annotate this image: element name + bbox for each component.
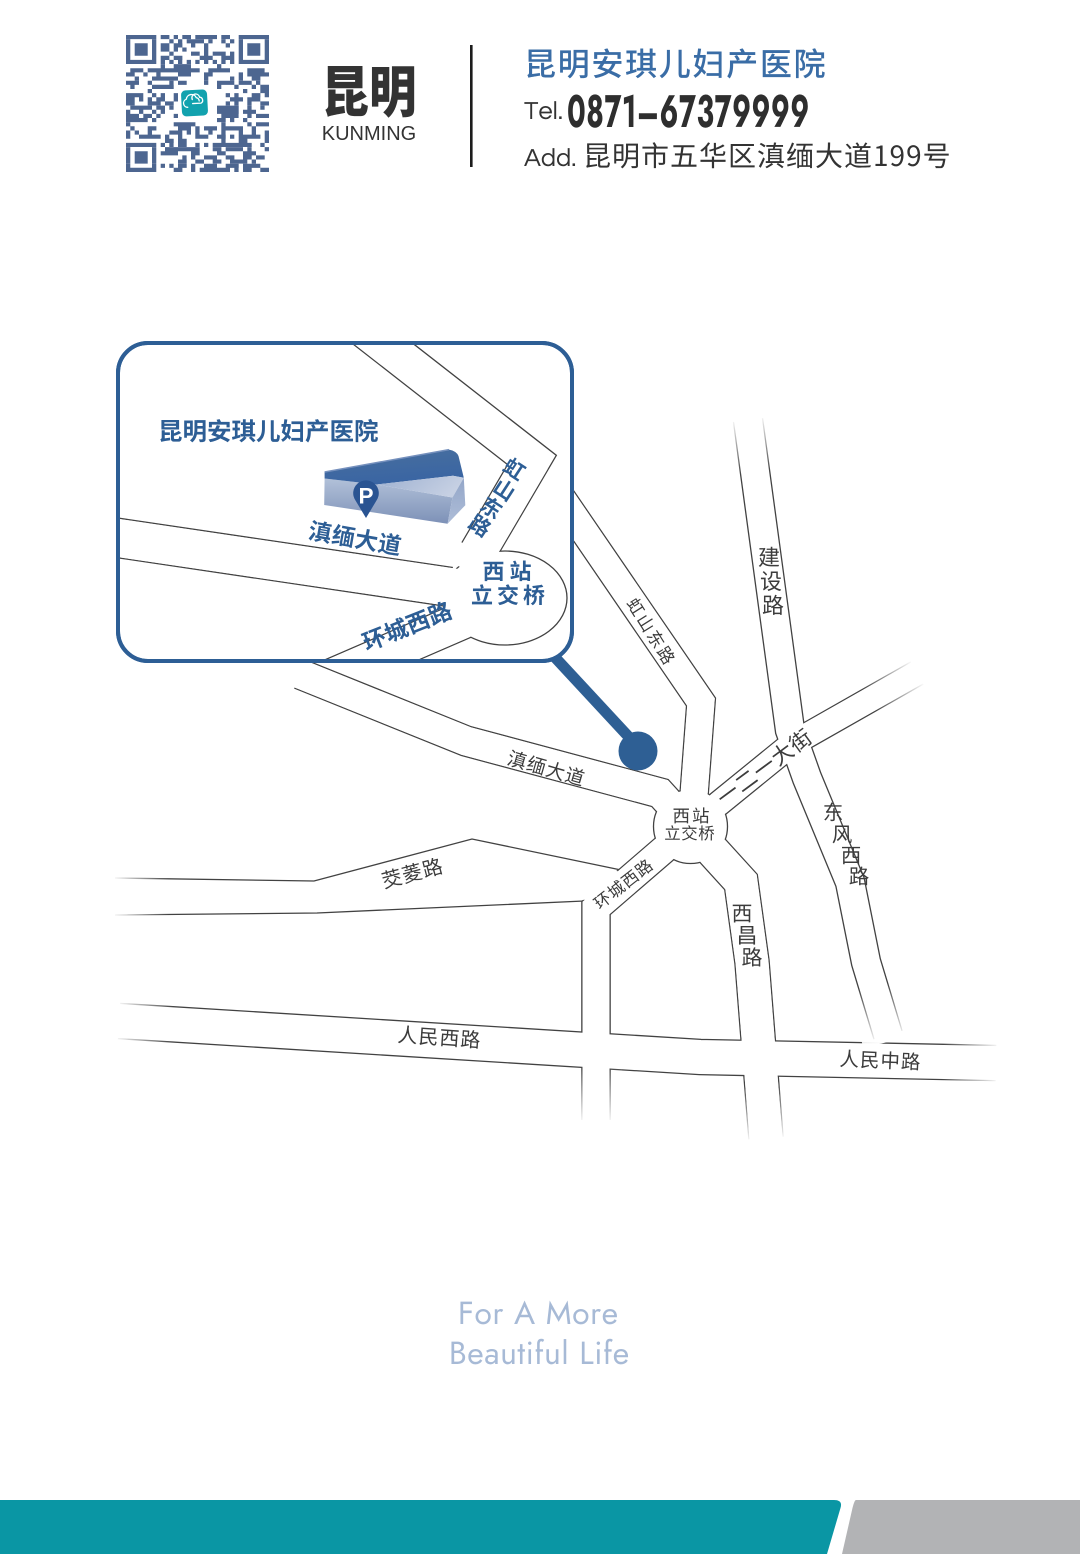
svg-text:KUNMING: KUNMING	[322, 123, 416, 145]
svg-text:P: P	[358, 484, 373, 509]
